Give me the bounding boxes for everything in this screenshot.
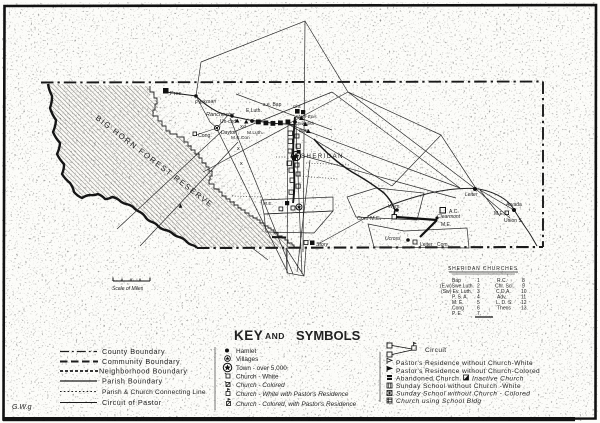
svg-text:G.W.g: G.W.g [12,404,32,411]
